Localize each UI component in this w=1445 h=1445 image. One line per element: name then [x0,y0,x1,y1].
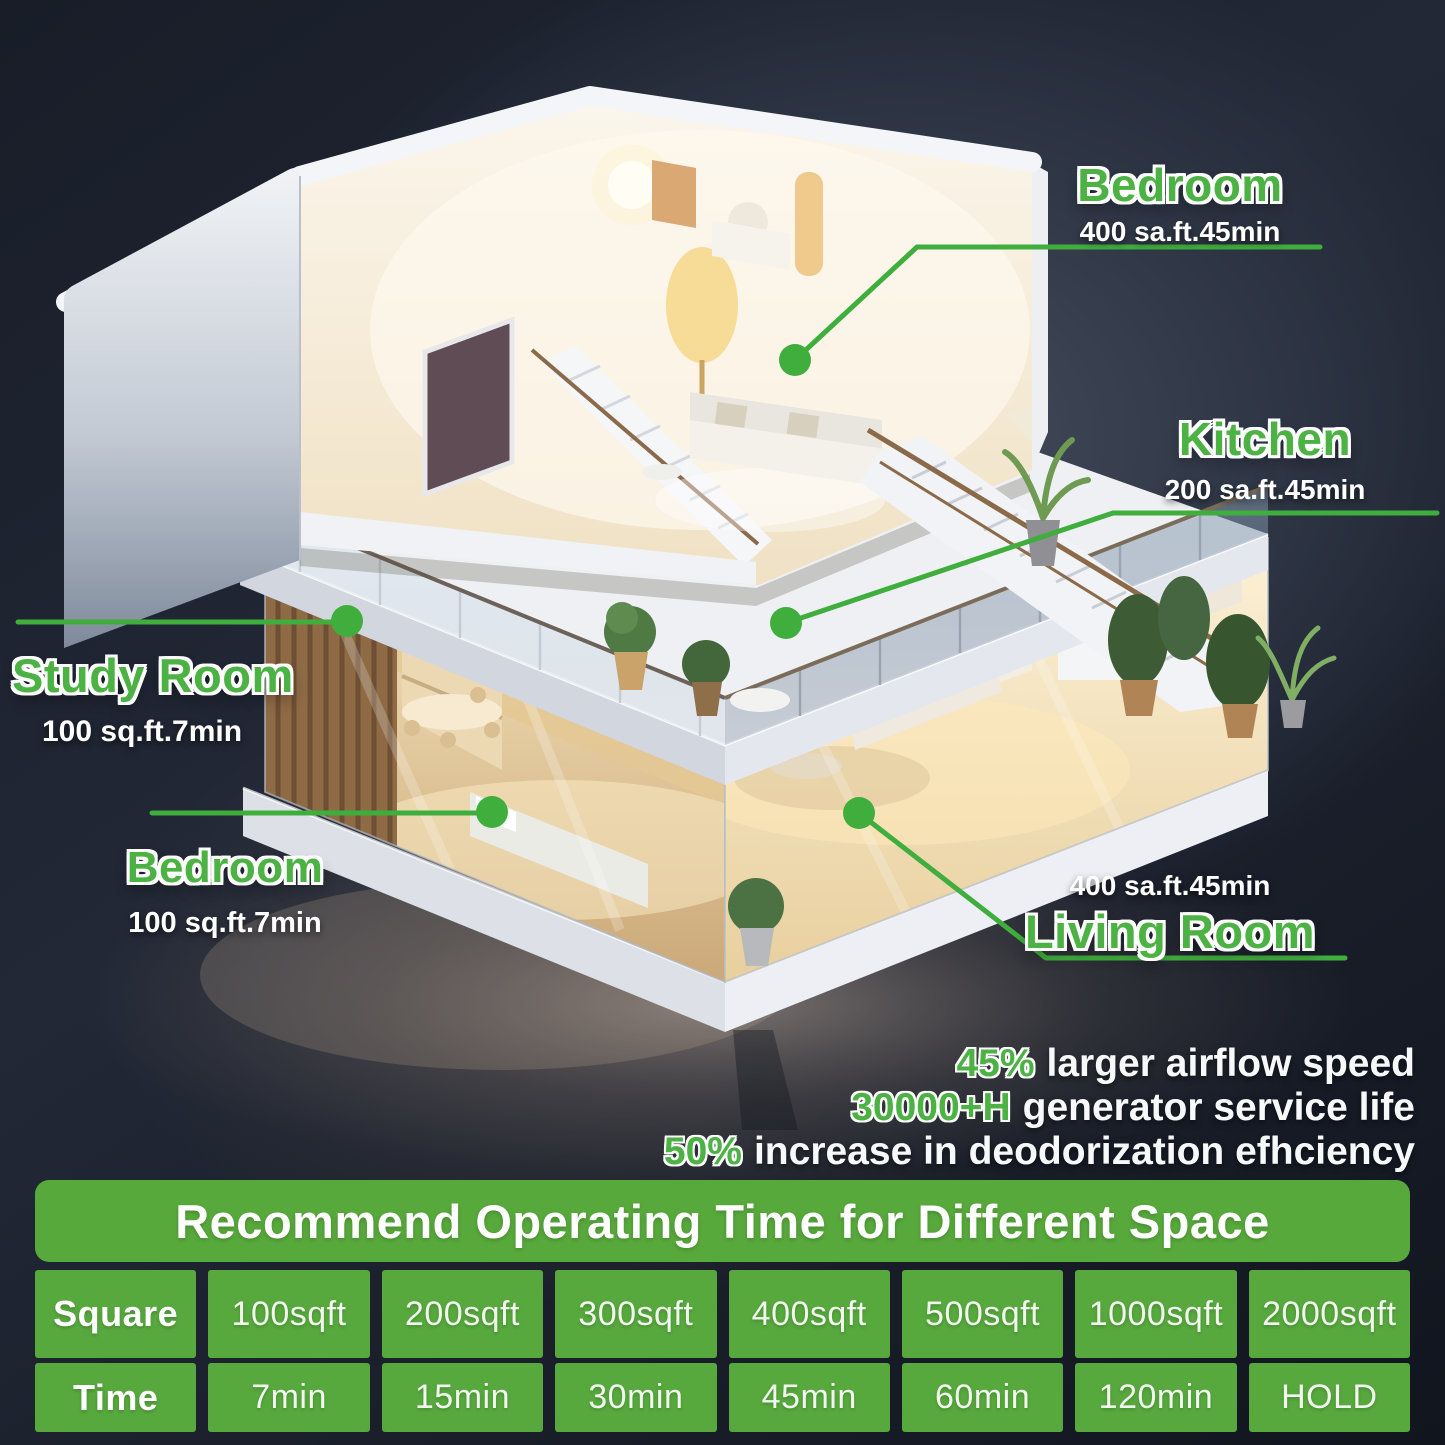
stat-value: 30000+H [851,1086,1010,1129]
room-label-bedroom-lower: Bedroom 100 sq.ft.7min [115,843,335,940]
stat-text: increase in deodorization efhciency [754,1130,1415,1173]
stat-value: 45% [956,1042,1034,1085]
room-label-kitchen: Kitchen 200 sa.ft.45min [1095,412,1435,506]
time-cell: 60min [902,1363,1063,1432]
square-cell: 100sqft [208,1270,369,1358]
stat-text: larger airflow speed [1047,1042,1415,1085]
square-cell: 300sqft [555,1270,716,1358]
room-name: Kitchen [1095,412,1435,466]
stat-deodorization: 50%increase in deodorization efhciency [664,1130,1415,1174]
room-label-study-room: Study Room 100 sq.ft.7min [12,648,262,749]
time-cell: 45min [729,1363,890,1432]
square-cell: 200sqft [382,1270,543,1358]
stat-text: generator service life [1023,1086,1415,1129]
table-title-banner: Recommend Operating Time for Different S… [35,1180,1410,1262]
room-detail: 200 sa.ft.45min [1095,474,1435,506]
square-cell: 2000sqft [1249,1270,1410,1358]
room-name: Study Room [12,648,262,703]
room-detail: 100 sq.ft.7min [115,907,335,940]
feature-stats: 45%larger airflow speed 30000+Hgenerator… [664,1042,1415,1174]
room-name: Bedroom [1020,158,1340,212]
row-header-time: Time [35,1363,196,1432]
stat-airflow: 45%larger airflow speed [664,1042,1415,1086]
table-row-square: Square 100sqft 200sqft 300sqft 400sqft 5… [35,1270,1410,1358]
time-cell: 120min [1075,1363,1236,1432]
square-cell: 1000sqft [1075,1270,1236,1358]
operating-time-table: Square 100sqft 200sqft 300sqft 400sqft 5… [35,1270,1410,1432]
room-detail: 400 sa.ft.45min [1005,870,1335,902]
time-cell: 7min [208,1363,369,1432]
room-name: Bedroom [115,843,335,893]
room-detail: 100 sq.ft.7min [42,715,262,749]
square-cell: 500sqft [902,1270,1063,1358]
room-label-bedroom-upper: Bedroom 400 sa.ft.45min [1020,158,1340,248]
time-cell: HOLD [1249,1363,1410,1432]
time-cell: 30min [555,1363,716,1432]
room-label-living-room: 400 sa.ft.45min Living Room [1005,870,1335,959]
stat-value: 50% [664,1130,742,1173]
table-row-time: Time 7min 15min 30min 45min 60min 120min… [35,1358,1410,1432]
square-cell: 400sqft [729,1270,890,1358]
stat-service-life: 30000+Hgenerator service life [664,1086,1415,1130]
time-cell: 15min [382,1363,543,1432]
room-name: Living Room [1005,904,1335,959]
row-header-square: Square [35,1270,196,1358]
infographic-canvas: Bedroom 400 sa.ft.45min Kitchen 200 sa.f… [0,0,1445,1445]
room-detail: 400 sa.ft.45min [1020,216,1340,248]
